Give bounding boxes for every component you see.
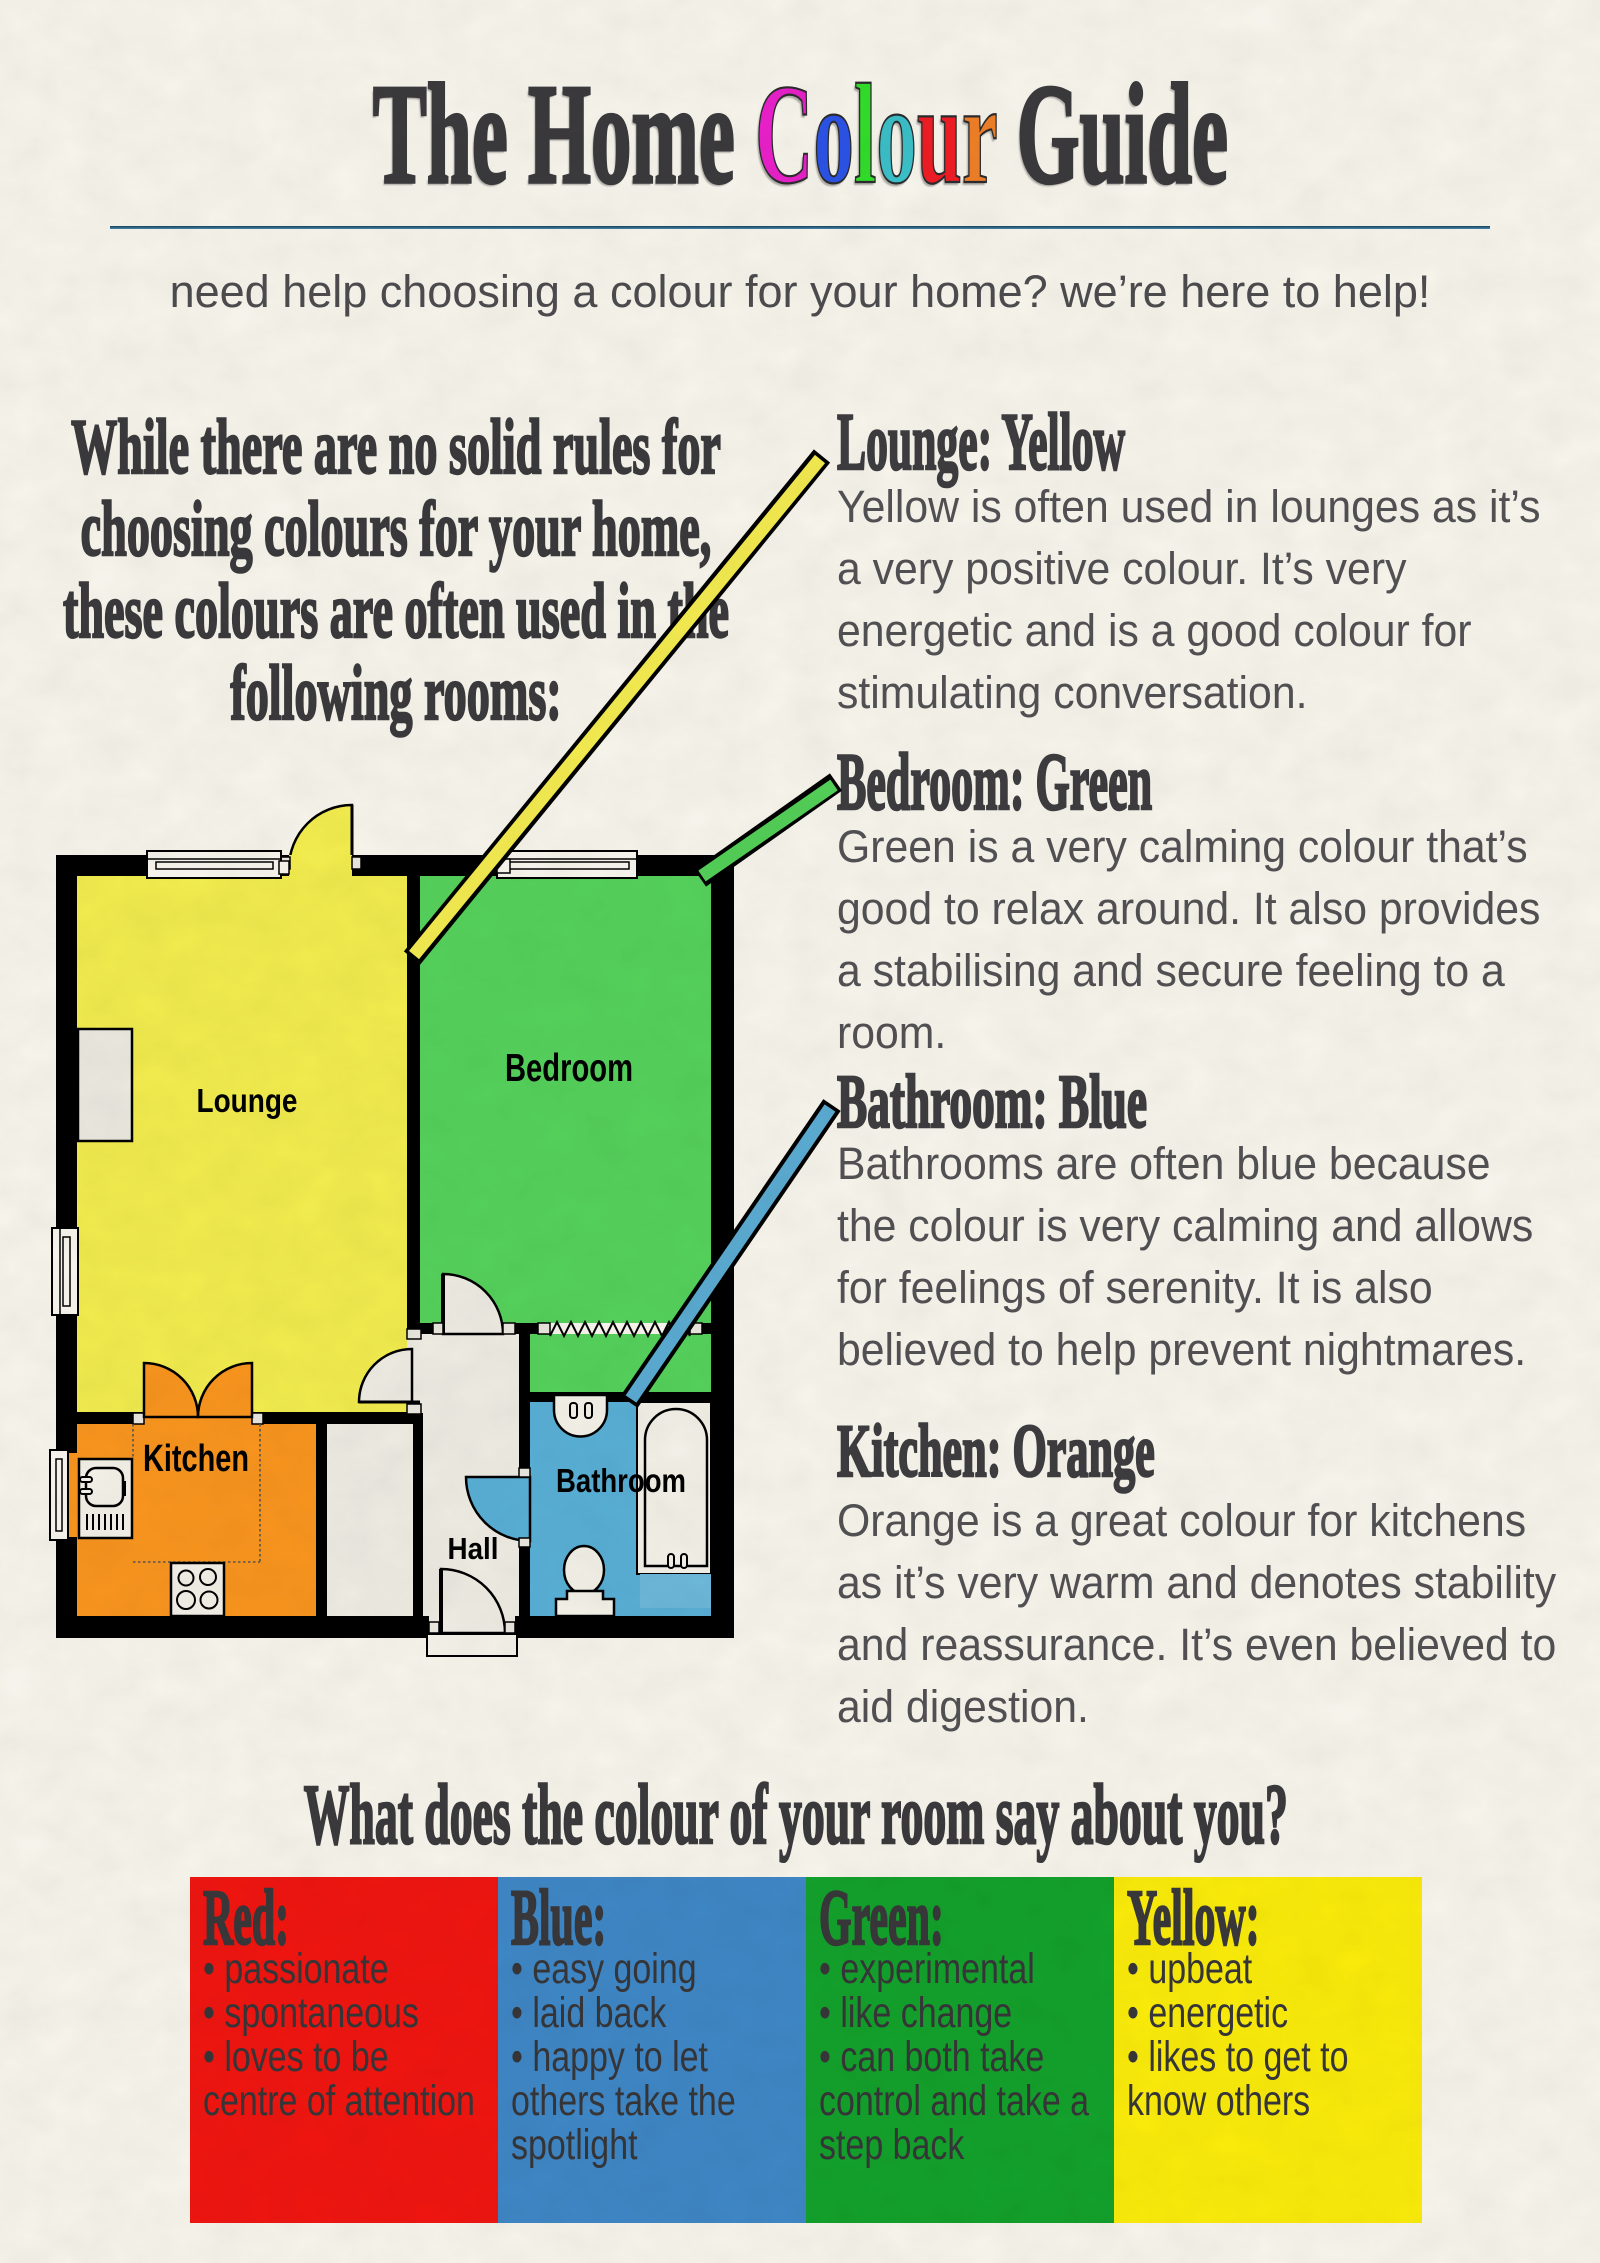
- svg-text:Kitchen: Kitchen: [143, 1438, 249, 1480]
- svg-text:Hall: Hall: [448, 1531, 499, 1566]
- svg-text:Lounge: Lounge: [197, 1082, 298, 1119]
- svg-text:Bedroom: Bedroom: [505, 1047, 633, 1090]
- svg-text:Bathroom: Bathroom: [556, 1462, 686, 1499]
